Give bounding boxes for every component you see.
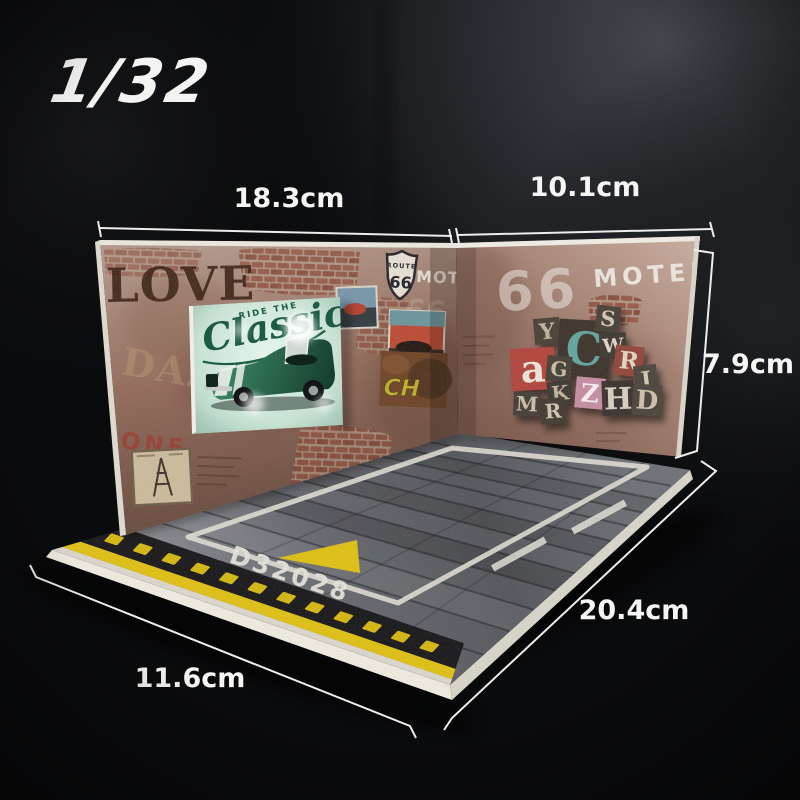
diorama-scene-svg: D32028 LOVE DAZE ONE 66 MOTEL (0, 0, 800, 800)
product-photo: D32028 LOVE DAZE ONE 66 MOTEL (0, 0, 800, 800)
vignette-overlay (0, 0, 800, 800)
